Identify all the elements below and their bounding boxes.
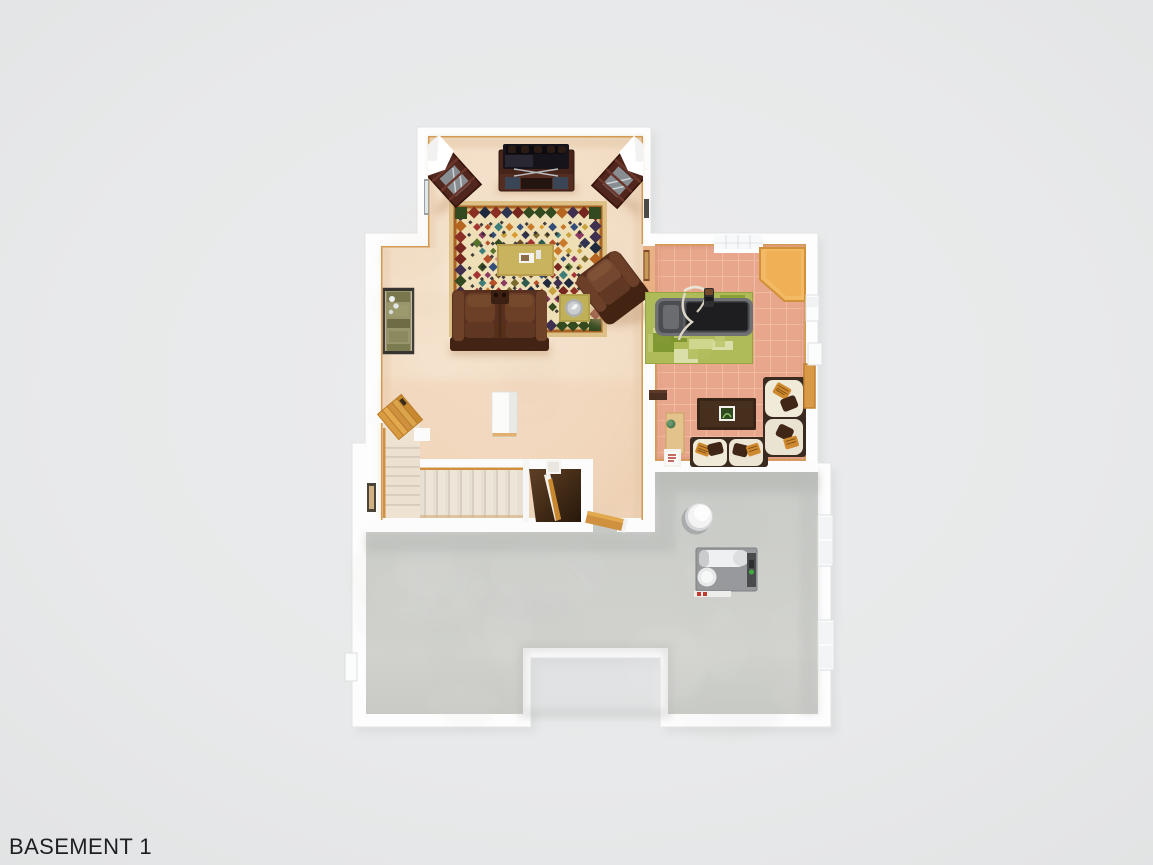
svg-text:BASEMENT 1: BASEMENT 1 [9, 834, 152, 859]
